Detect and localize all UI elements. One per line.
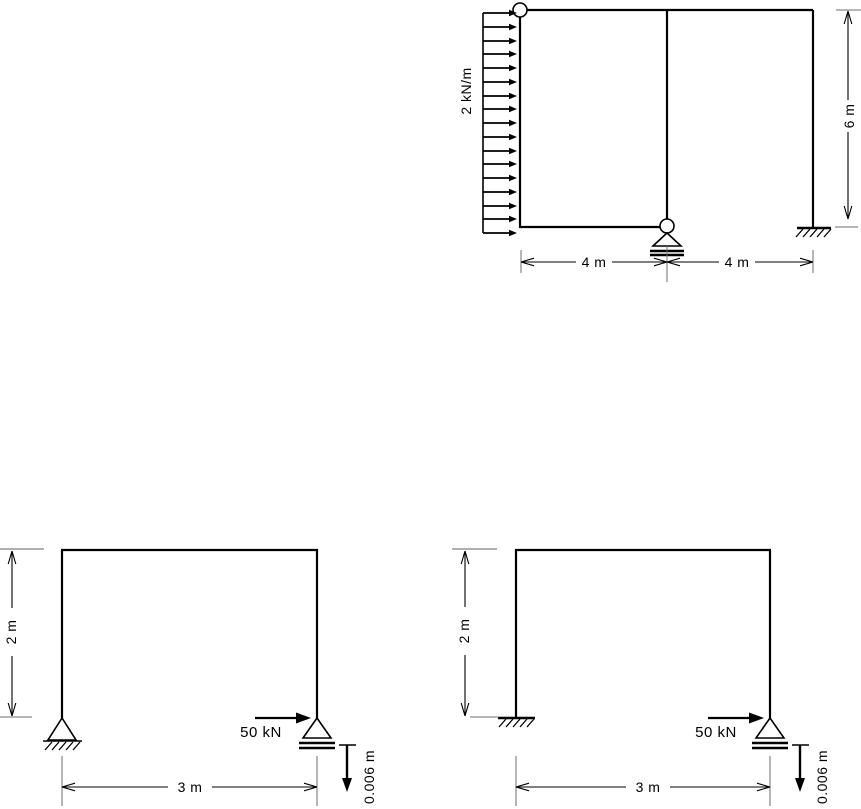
udl-arrow-icon [483,148,517,155]
roller-support-triangle-icon [303,718,331,738]
dim-label-height: 2 m [3,620,19,645]
udl-arrow-icon [483,65,517,72]
dim-label-height: 2 m [456,619,472,644]
udl-arrow-icon [483,134,517,141]
udl-arrow-icon [483,161,517,168]
dim-label-span: 3 m [636,779,661,795]
udl-arrow-icon [483,216,517,223]
udl-arrow-icon [483,189,517,196]
dim-label-height: 6 m [841,104,857,129]
pin-support-triangle-icon [48,718,76,740]
dim-label-span: 3 m [178,779,203,795]
udl-arrow-icon [483,120,517,127]
force-label: 50 kN [695,724,737,741]
figure-bottom-left-portal-frame: 50 kN 0.006 m 2 m 3 m [0,549,377,806]
ground-hatch-icon [45,742,80,750]
force-arrowhead-icon [296,713,311,724]
structural-diagrams-canvas: 2 kN/m 4 m 4 m 6 m [0,0,861,809]
settlement-label: 0.006 m [361,750,377,804]
udl-arrow-icon [483,10,517,17]
hinge-circle-icon [513,3,527,17]
force-label: 50 kN [240,724,282,741]
udl-arrow-icon [483,230,517,237]
settlement-arrowhead-icon [795,778,805,792]
figure-bottom-right-portal-frame: 50 kN 0.006 m 2 m 3 m [452,549,830,806]
pin-circle-icon [660,219,674,233]
udl-arrow-icon [483,93,517,100]
figure-top-two-bay-frame: 2 kN/m 4 m 4 m 6 m [458,3,861,282]
dim-label-right-bay: 4 m [725,254,750,270]
force-arrowhead-icon [749,713,764,724]
support-triangle-icon [653,233,681,246]
udl-arrow-icon [483,175,517,182]
udl-arrow-icon [483,203,517,210]
udl-arrow-icon [483,24,517,31]
roller-support-triangle-icon [756,718,784,738]
udl-arrow-icon [483,79,517,86]
ground-hatch-icon [796,229,831,237]
udl-label: 2 kN/m [458,67,474,114]
udl-arrow-icon [483,38,517,45]
udl-arrow-icon [483,106,517,113]
settlement-arrowhead-icon [342,778,352,792]
udl-arrow-icon [483,51,517,58]
settlement-label: 0.006 m [814,750,830,804]
ground-hatch-icon [499,719,534,727]
dim-label-left-bay: 4 m [582,254,607,270]
